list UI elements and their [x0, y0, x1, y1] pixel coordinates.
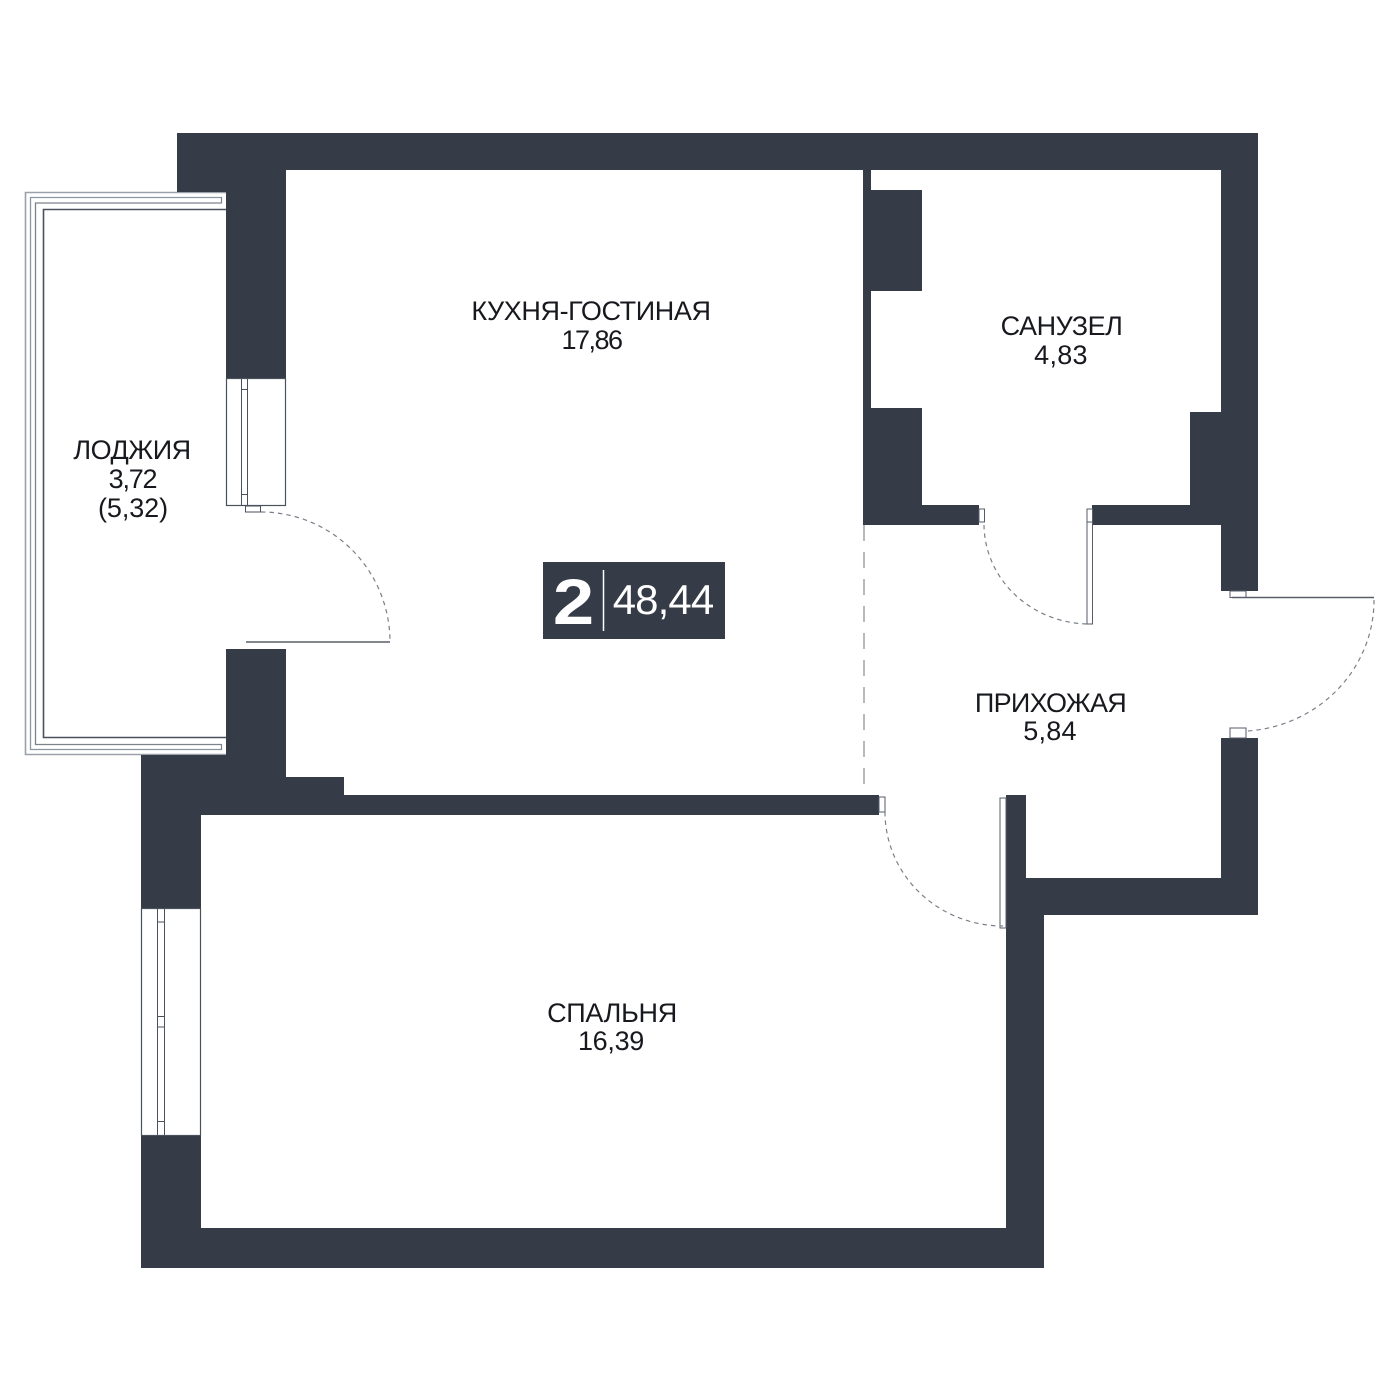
svg-text:ПРИХОЖАЯ: ПРИХОЖАЯ — [975, 688, 1126, 718]
svg-text:САНУЗЕЛ: САНУЗЕЛ — [1001, 311, 1123, 341]
svg-text:(5,32): (5,32) — [98, 493, 168, 523]
svg-text:16,39: 16,39 — [578, 1026, 644, 1056]
svg-text:48,44: 48,44 — [613, 576, 714, 623]
svg-text:3,72: 3,72 — [109, 464, 157, 494]
svg-text:5,84: 5,84 — [1023, 716, 1077, 746]
svg-text:2: 2 — [553, 566, 594, 638]
svg-text:ЛОДЖИЯ: ЛОДЖИЯ — [73, 435, 190, 465]
svg-text:17,86: 17,86 — [561, 325, 622, 355]
svg-text:СПАЛЬНЯ: СПАЛЬНЯ — [547, 998, 677, 1028]
svg-text:4,83: 4,83 — [1034, 340, 1088, 370]
svg-text:КУХНЯ-ГОСТИНАЯ: КУХНЯ-ГОСТИНАЯ — [471, 296, 710, 326]
